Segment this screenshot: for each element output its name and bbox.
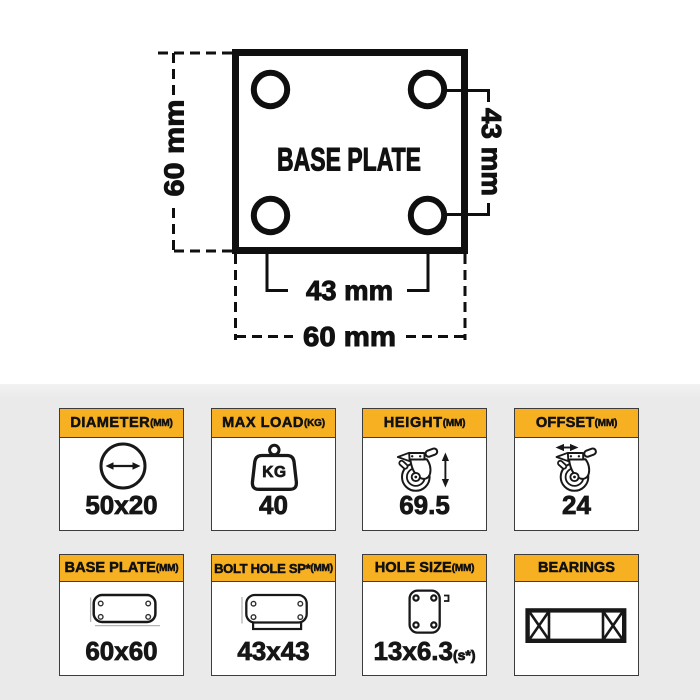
svg-text:60 mm: 60 mm [159, 100, 190, 197]
svg-text:BASE PLATE: BASE PLATE [277, 142, 421, 178]
svg-text:60 mm: 60 mm [303, 321, 396, 352]
svg-text:KG: KG [262, 464, 286, 481]
svg-text:43 mm: 43 mm [306, 275, 393, 306]
svg-text:43 mm: 43 mm [476, 108, 507, 196]
